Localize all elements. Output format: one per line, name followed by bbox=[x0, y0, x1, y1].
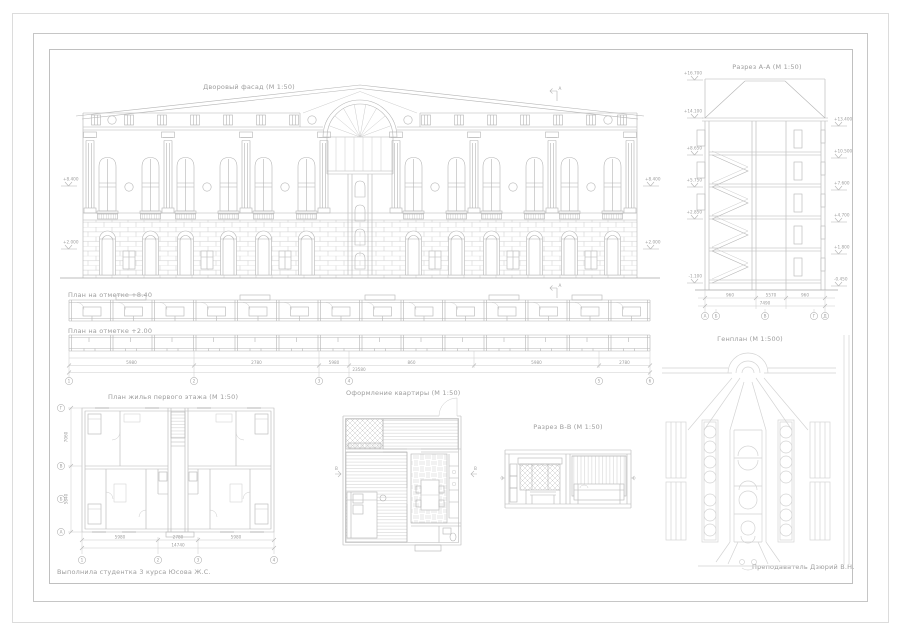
plans-dim: 5980 bbox=[329, 360, 340, 365]
floor-plan-dim: 5980 bbox=[115, 535, 126, 540]
floor-plan-dim-total: 14740 bbox=[171, 543, 185, 548]
section-a-drawing: +16.700 +14.100 +8.650 +5.750 +2.850 -1.… bbox=[690, 60, 870, 325]
section-level-label: +7.600 bbox=[834, 181, 850, 186]
section-level-label: -0.450 bbox=[834, 277, 848, 282]
axis-bubble-label: Б bbox=[715, 314, 718, 319]
apartment-plan-drawing: В В bbox=[335, 388, 483, 556]
section-level-label: +13.400 bbox=[834, 117, 852, 122]
floor-plan-dim: 5980 bbox=[231, 535, 242, 540]
axis-bubble-label: Г bbox=[813, 314, 816, 319]
axis-bubble-label: 6 bbox=[649, 379, 652, 384]
section-level-label: +2.850 bbox=[687, 210, 703, 215]
plans-cut-label: А bbox=[559, 283, 562, 288]
floor-plan-dim: 2780 bbox=[173, 535, 184, 540]
axis-bubble-label: 5 bbox=[598, 379, 601, 384]
section-level-label: +14.100 bbox=[684, 109, 702, 114]
plans-dim: 5980 bbox=[531, 360, 542, 365]
genplan-drawing bbox=[658, 330, 863, 572]
plan-strips-drawing: А 5980 2780 5980 860 5980 2780 23580 1 2… bbox=[65, 288, 660, 388]
drawing-sheet: Дворовый фасад (М 1:50) Разрез А-А (М 1:… bbox=[0, 0, 900, 636]
apartment-cut-label: В bbox=[474, 466, 477, 471]
axis-bubble-label: А bbox=[60, 530, 63, 535]
plans-dim: 860 bbox=[408, 360, 416, 365]
plans-dim: 2780 bbox=[251, 360, 262, 365]
axis-bubble-label: 2 bbox=[193, 379, 196, 384]
floor-plan-dim: 7060 bbox=[64, 431, 69, 442]
signature-author: Выполнила студентка 3 курса Юсова Ж.С. bbox=[57, 569, 211, 576]
section-level-label: +4.700 bbox=[834, 213, 850, 218]
section-level-label: +10.500 bbox=[834, 149, 852, 154]
facade-level-label: +8.400 bbox=[645, 177, 661, 182]
axis-bubble-label: 3 bbox=[318, 379, 321, 384]
plans-dim-total: 23580 bbox=[352, 367, 366, 372]
facade-level-label: +2.000 bbox=[63, 240, 79, 245]
apartment-cut-label: В bbox=[335, 466, 338, 471]
axis-bubble-label: Г bbox=[60, 406, 63, 411]
section-dim: 960 bbox=[726, 293, 734, 298]
section-level-label: +5.750 bbox=[687, 178, 703, 183]
section-b-drawing bbox=[500, 418, 668, 553]
facade-cut-label: А bbox=[559, 86, 562, 91]
section-dim: 5570 bbox=[766, 293, 777, 298]
axis-bubble-label: 3 bbox=[197, 558, 200, 563]
axis-bubble-label: 1 bbox=[81, 558, 84, 563]
axis-bubble-label: 4 bbox=[273, 558, 276, 563]
axis-bubble-label: А bbox=[704, 314, 707, 319]
facade-level-label: +2.000 bbox=[645, 240, 661, 245]
axis-bubble-label: 4 bbox=[348, 379, 351, 384]
facade-elevation-drawing: +8.400 +2.000 +8.400 +2.000 А bbox=[60, 83, 660, 283]
facade-level-label: +8.400 bbox=[63, 177, 79, 182]
axis-bubble-label: В bbox=[60, 464, 63, 469]
axis-bubble-label: В bbox=[764, 314, 767, 319]
section-level-label: +8.650 bbox=[687, 146, 703, 151]
section-dim: 960 bbox=[801, 293, 809, 298]
section-level-label: +1.800 bbox=[834, 245, 850, 250]
section-dim-total: 7490 bbox=[760, 301, 771, 306]
floor-plan-drawing: 7060 5840 А Б В Г 5980 2780 5980 14740 1… bbox=[62, 392, 302, 570]
floor-plan-dim: 5840 bbox=[64, 493, 69, 504]
axis-bubble-label: Б bbox=[60, 497, 63, 502]
section-level-label: -1.100 bbox=[689, 274, 703, 279]
axis-bubble-label: 1 bbox=[68, 379, 71, 384]
axis-bubble-label: 2 bbox=[157, 558, 160, 563]
section-level-label: +16.700 bbox=[684, 71, 702, 76]
plans-dim: 2780 bbox=[619, 360, 630, 365]
plans-dim: 5980 bbox=[126, 360, 137, 365]
axis-bubble-label: Д bbox=[823, 314, 827, 319]
